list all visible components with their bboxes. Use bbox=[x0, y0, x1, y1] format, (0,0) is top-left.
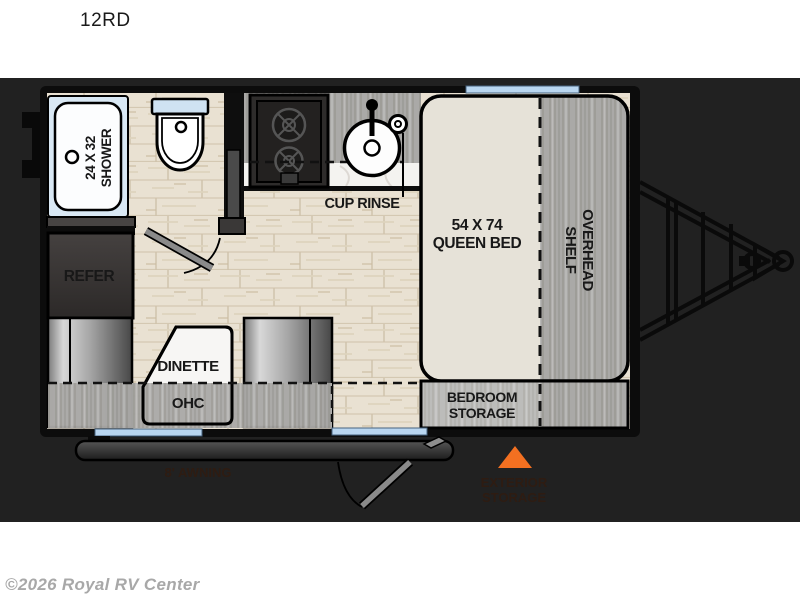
floorplan-image: CUP RINSE 54 X 74 QUEEN BED OVERHEAD SHE… bbox=[0, 0, 800, 600]
entry-door-window bbox=[332, 428, 427, 435]
refrigerator-label: REFER bbox=[64, 268, 115, 285]
bedroom-storage-label: BEDROOM bbox=[447, 389, 517, 405]
sprayer-icon bbox=[390, 116, 407, 133]
svg-text:EXTERIOR: EXTERIOR bbox=[481, 475, 548, 490]
svg-text:SHELF: SHELF bbox=[562, 226, 579, 273]
bed-size-label: 54 X 74 bbox=[452, 217, 503, 234]
svg-text:OVERHEAD: OVERHEAD bbox=[579, 209, 596, 291]
cup-rinse-label: CUP RINSE bbox=[324, 196, 400, 212]
toilet-flush-icon bbox=[176, 122, 186, 132]
toilet bbox=[152, 99, 208, 170]
floorplan-page: 12RD bbox=[0, 0, 800, 600]
bed-window bbox=[466, 86, 579, 93]
svg-text:STORAGE: STORAGE bbox=[482, 490, 546, 505]
watermark: ©2026 Royal RV Center bbox=[5, 575, 200, 595]
dinette-window bbox=[95, 429, 202, 436]
bed-type-label: QUEEN BED bbox=[433, 235, 522, 252]
svg-text:STORAGE: STORAGE bbox=[449, 405, 515, 421]
svg-text:SHOWER: SHOWER bbox=[99, 128, 114, 187]
shower: 24 X 32 SHOWER bbox=[47, 96, 135, 235]
svg-text:24 X 32: 24 X 32 bbox=[83, 136, 98, 180]
awning-hidden-label: 8' AWNING bbox=[165, 465, 232, 480]
dinette-label: DINETTE bbox=[157, 358, 219, 375]
shower-drain-icon bbox=[66, 151, 78, 163]
shower-label: 24 X 32 SHOWER bbox=[83, 128, 114, 187]
ohc-label: OHC bbox=[172, 395, 205, 412]
stove-cooktop bbox=[250, 95, 328, 187]
